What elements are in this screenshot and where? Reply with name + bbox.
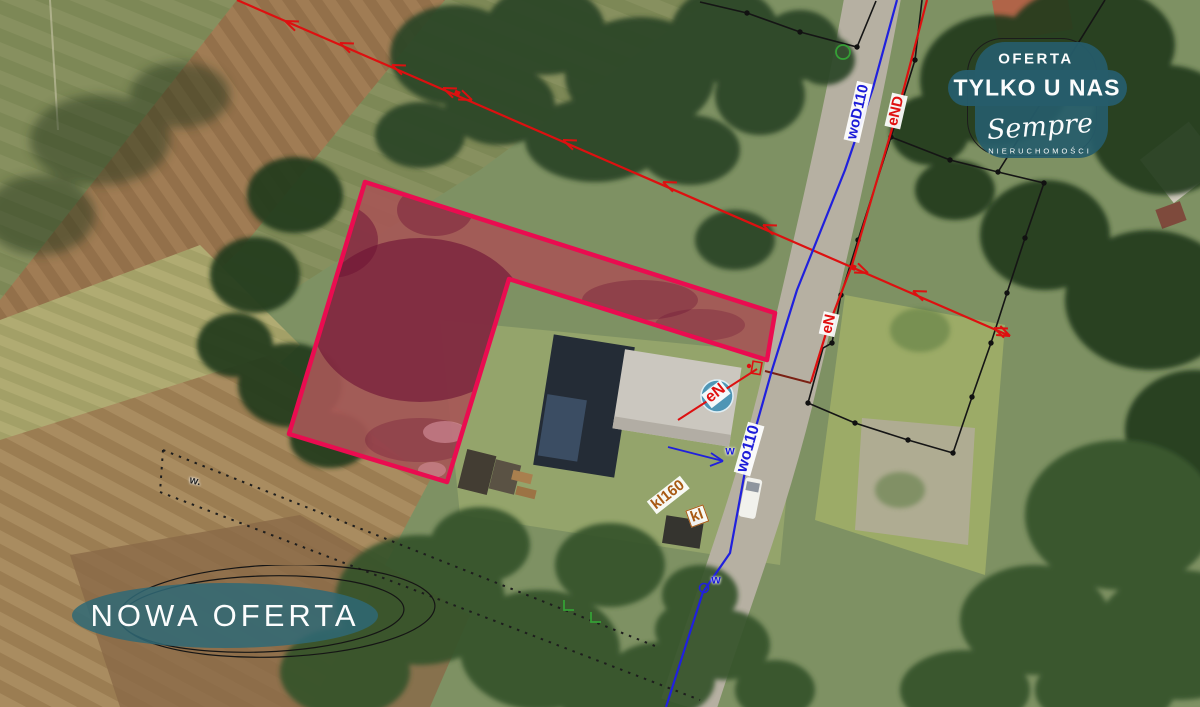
label-boundary-note: w. (188, 475, 201, 489)
new-offer-badge-label: NOWA OFERTA (90, 598, 359, 634)
label-water-point: w (711, 574, 720, 587)
exclusive-badge-line1: OFERTA (998, 51, 1074, 68)
exclusive-badge: OFERTA TYLKO U NAS Sempre NIERUCHOMOŚCI (940, 18, 1150, 168)
new-offer-badge-ellipse: NOWA OFERTA (72, 583, 378, 648)
aerial-map: woD110 eND eN eN wo110 w w w. kl160 kl N… (0, 0, 1200, 707)
brand-subtitle: NIERUCHOMOŚCI (988, 147, 1092, 156)
label-water-connection: w (725, 445, 734, 458)
exclusive-badge-line2: TYLKO U NAS (954, 75, 1121, 102)
new-offer-badge: NOWA OFERTA (70, 565, 510, 665)
